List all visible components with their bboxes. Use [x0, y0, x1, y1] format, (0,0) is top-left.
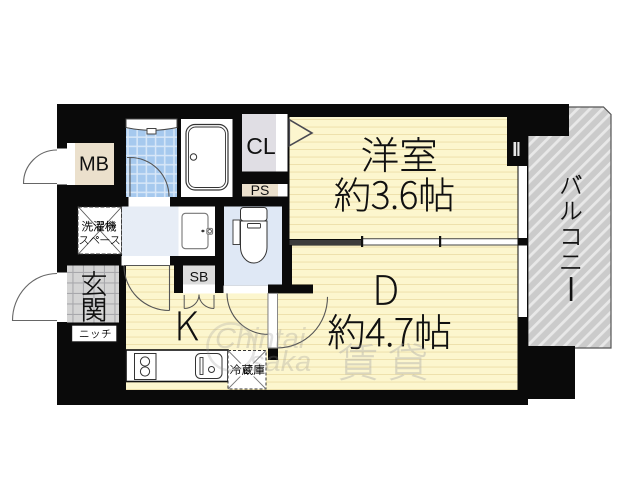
svg-text:CL: CL	[246, 133, 276, 159]
svg-text:MB: MB	[79, 154, 109, 176]
svg-text:SB: SB	[190, 269, 209, 285]
svg-text:PS: PS	[251, 182, 270, 198]
svg-text:saka: saka	[250, 346, 311, 378]
